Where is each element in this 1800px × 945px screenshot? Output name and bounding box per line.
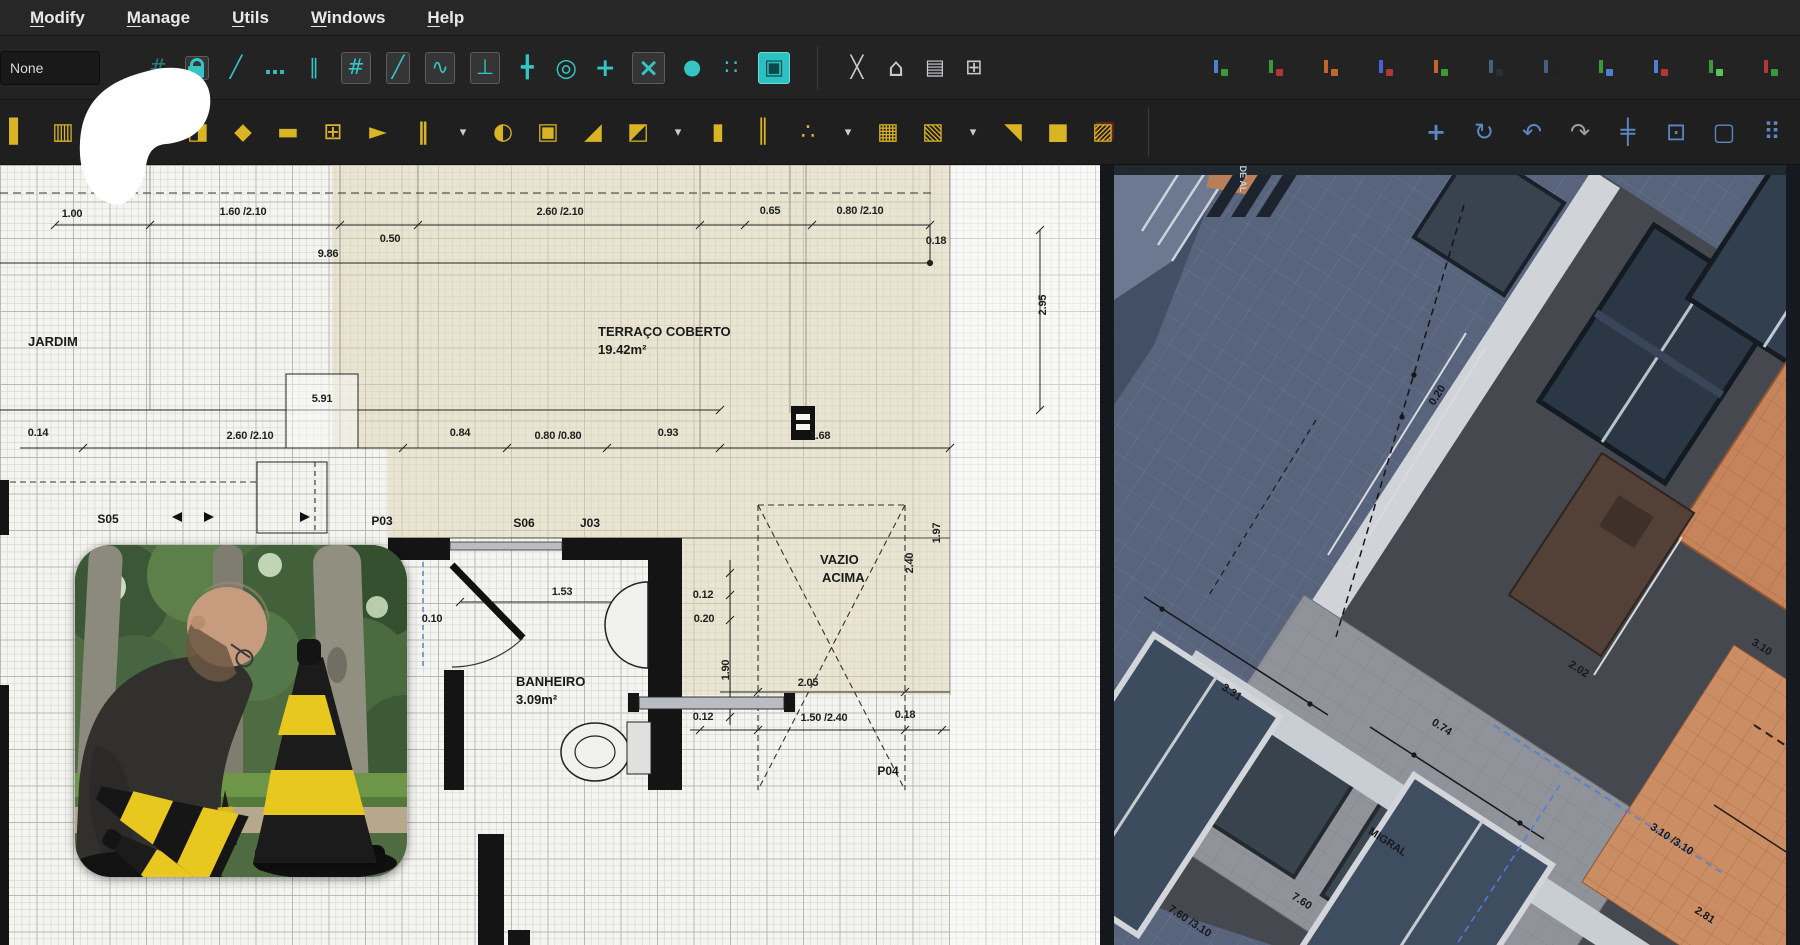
window-sill-s06 xyxy=(450,542,562,550)
solid-cube-icon[interactable]: ■ xyxy=(1046,117,1070,147)
stair-icon[interactable]: ◥ xyxy=(1001,117,1025,147)
text-annotation: J03 xyxy=(580,516,600,530)
text-annotation: 0.20 xyxy=(694,613,715,625)
wall-end-icon[interactable]: ▌ xyxy=(6,117,30,147)
text-annotation: 0.12 xyxy=(693,589,714,601)
add-icon[interactable]: + xyxy=(593,53,617,83)
pane-divider[interactable] xyxy=(1100,165,1114,945)
more-options-icon[interactable]: … xyxy=(263,53,287,83)
lock-icon[interactable] xyxy=(185,56,209,80)
room-label-terraco: TERRAÇO COBERTO xyxy=(598,324,731,339)
ramp-icon[interactable]: ◢ xyxy=(581,117,605,147)
webcam-video xyxy=(75,545,407,877)
toilet-tank xyxy=(627,722,651,774)
dim-aligned-icon[interactable] xyxy=(1266,59,1283,76)
text-annotation: 2.60 /2.10 xyxy=(227,430,274,442)
dim-edit-icon[interactable] xyxy=(1761,59,1778,76)
text-annotation: 5.91 xyxy=(312,393,333,405)
text-annotation: 0.80 /0.80 xyxy=(535,430,582,442)
text-annotation: 0.50 xyxy=(380,233,401,245)
room-area-terraco: 19.42m² xyxy=(598,342,647,357)
fit-view-icon[interactable]: ⊡ xyxy=(1664,117,1688,147)
text-annotation: DE AL xyxy=(1238,166,1248,193)
grid-snap-icon[interactable]: # xyxy=(146,53,170,83)
dim-flag-icon[interactable] xyxy=(1321,59,1338,76)
endpoint-snap-icon[interactable]: ╱ xyxy=(224,53,248,83)
menu-manage[interactable]: Manage xyxy=(127,8,190,28)
perpendicular-snap-icon[interactable]: ⊥ xyxy=(470,52,500,84)
text-annotation: 0.14 xyxy=(28,427,50,439)
text-annotation: P04 xyxy=(877,764,899,778)
orbit-icon[interactable]: ↻ xyxy=(1472,117,1496,147)
dropdown-2-icon[interactable]: ▾ xyxy=(671,117,685,147)
text-annotation: 2.60 /2.10 xyxy=(537,206,584,218)
label-marker-icon[interactable]: ► xyxy=(366,117,390,147)
column-icon[interactable]: ▯ xyxy=(141,117,165,147)
room-label-banheiro: BANHEIRO xyxy=(516,674,585,689)
door-panel-icon[interactable]: ▣ xyxy=(536,117,560,147)
dim-linear-icon[interactable] xyxy=(1211,59,1228,76)
text-annotation: 0.80 /2.10 xyxy=(837,205,884,217)
slab-angled-icon[interactable]: ▧ xyxy=(921,117,945,147)
room-label-jardim: JARDIM xyxy=(28,334,78,349)
menu-bar: ModifyManageUtilsWindowsHelp xyxy=(0,0,1800,36)
dim-chain-icon[interactable] xyxy=(1706,59,1723,76)
text-annotation: 1.90 xyxy=(720,660,732,681)
selection-filter-dropdown[interactable]: None xyxy=(0,51,100,85)
layers-icon[interactable]: ▤ xyxy=(923,53,947,83)
text-annotation: 0.10 xyxy=(422,613,443,625)
dim-vertical-icon[interactable] xyxy=(1596,59,1613,76)
text-annotation: 0.12 xyxy=(693,711,714,723)
points-icon[interactable]: ∴ xyxy=(796,117,820,147)
text-annotation: 0.18 xyxy=(926,235,947,247)
fill-tool-icon[interactable]: ◐ xyxy=(491,117,515,147)
toolbar-separator xyxy=(1148,108,1149,156)
tools-icon[interactable]: ╳ xyxy=(845,53,869,83)
room-label-acima: ACIMA xyxy=(822,570,865,585)
undo-view-icon[interactable]: ↶ xyxy=(1520,117,1544,147)
delete-icon[interactable]: × xyxy=(632,52,665,84)
view-tools-group: +↻↶↷╪⊡▢⠿ xyxy=(1424,117,1800,147)
text-annotation: 0.65 xyxy=(760,205,781,217)
morph-icon[interactable]: ▨ xyxy=(1091,117,1115,147)
text-annotation: 2.95 xyxy=(1037,295,1049,316)
text-annotation: 0.18 xyxy=(895,709,916,721)
build-tools-group: ▌▥▤▯◨◆▬⊞►‖▾◐▣◢◩▾▮║∴▾▦▧▾◥■▨ xyxy=(6,108,1161,156)
layout-page-icon[interactable]: ▢ xyxy=(1712,117,1736,147)
dropdown-3-icon[interactable]: ▾ xyxy=(841,117,855,147)
text-annotation: 2.40 xyxy=(904,553,916,574)
dimension-tools-group xyxy=(1211,59,1800,76)
presenter-webcam-overlay[interactable] xyxy=(75,545,407,877)
text-annotation: P03 xyxy=(371,514,393,528)
selection-filter-value: None xyxy=(10,60,43,76)
door-icon[interactable]: ◨ xyxy=(186,117,210,147)
object-icon[interactable]: ◩ xyxy=(626,117,650,147)
rotate-ccw-icon[interactable] xyxy=(1486,59,1503,76)
model-3d-scene: 0.203.310.742.02MIGRAL3.10 /3.102.817.60… xyxy=(1114,165,1800,945)
room-area-banheiro: 3.09m² xyxy=(516,692,558,707)
window-icon[interactable]: ⊞ xyxy=(321,117,345,147)
toolbar-separator xyxy=(817,46,818,90)
railing-icon[interactable]: ‖ xyxy=(411,117,435,147)
cad-application-window: ModifyManageUtilsWindowsHelp None #╱…∥#╱… xyxy=(0,0,1800,945)
menu-utils[interactable]: Utils xyxy=(232,8,269,28)
text-annotation: 1.68 xyxy=(810,430,831,442)
dropdown-1-icon[interactable]: ▾ xyxy=(456,117,470,147)
text-annotation: 1.50 /2.40 xyxy=(801,712,848,724)
grid-display-icon[interactable]: # xyxy=(341,52,371,84)
split-view-icon[interactable]: ╪ xyxy=(1616,117,1640,147)
wall-icon[interactable]: ▥ xyxy=(51,117,75,147)
text-annotation: S06 xyxy=(513,516,535,530)
menu-modify[interactable]: Modify xyxy=(30,8,85,28)
text-annotation: S05 xyxy=(97,512,119,526)
text-annotation: 0.93 xyxy=(658,427,679,439)
slab-icon[interactable]: ▬ xyxy=(276,117,300,147)
dim-baseline-icon[interactable] xyxy=(1651,59,1668,76)
main-toolbar: None #╱…∥#╱∿⊥╋◎+×●∷▣╳⌂▤⊞ xyxy=(0,36,1800,100)
text-annotation: 0.84 xyxy=(450,427,472,439)
dim-ordinate-icon[interactable] xyxy=(1431,59,1448,76)
text-annotation: 1.97 xyxy=(931,523,943,544)
window-sill-lower xyxy=(639,697,784,709)
text-annotation: 9.86 xyxy=(318,248,339,260)
model-3d-viewport[interactable]: 0.203.310.742.02MIGRAL3.10 /3.102.817.60… xyxy=(1114,165,1800,945)
roof-icon[interactable]: ◆ xyxy=(231,117,255,147)
room-label-vazio: VAZIO xyxy=(820,552,859,567)
point-array-icon[interactable]: ∷ xyxy=(719,53,743,83)
menu-help[interactable]: Help xyxy=(427,8,464,28)
center-snap-icon[interactable]: ◎ xyxy=(554,53,578,83)
rotate-cw-icon[interactable] xyxy=(1541,59,1558,76)
text-annotation: 1.53 xyxy=(552,586,573,598)
mesh-icon[interactable]: ▦ xyxy=(876,117,900,147)
move-tool-icon[interactable]: ╋ xyxy=(515,53,539,83)
line-tool-icon[interactable]: ╱ xyxy=(386,52,411,84)
home-view-icon[interactable]: ⌂ xyxy=(884,53,908,83)
grid-views-icon[interactable]: ⠿ xyxy=(1760,117,1784,147)
active-panel-icon[interactable]: ▣ xyxy=(758,52,790,84)
text-annotation: 2.05 xyxy=(798,677,819,689)
text-annotation: 1.60 /2.10 xyxy=(220,206,267,218)
toilet-bowl xyxy=(561,723,629,781)
dim-text-icon[interactable] xyxy=(1376,59,1393,76)
model-grid-icon[interactable]: ⊞ xyxy=(962,53,986,83)
text-annotation: 1.00 xyxy=(62,208,83,220)
menu-windows[interactable]: Windows xyxy=(311,8,385,28)
redo-view-icon[interactable]: ↷ xyxy=(1568,117,1592,147)
dropdown-4-icon[interactable]: ▾ xyxy=(966,117,980,147)
eraser-icon[interactable]: ● xyxy=(680,53,704,83)
curtain-wall-icon[interactable]: ║ xyxy=(751,117,775,147)
pan-icon[interactable]: + xyxy=(1424,117,1448,147)
beam-icon[interactable]: ▤ xyxy=(96,117,120,147)
window-tag-box xyxy=(286,374,358,448)
spline-tool-icon[interactable]: ∿ xyxy=(425,52,455,84)
snap-tools-group: #╱…∥#╱∿⊥╋◎+×●∷▣╳⌂▤⊞ xyxy=(146,46,986,90)
column-tool-icon[interactable]: ▮ xyxy=(706,117,730,147)
parallel-snap-icon[interactable]: ∥ xyxy=(302,53,326,83)
design-toolbar: ▌▥▤▯◨◆▬⊞►‖▾◐▣◢◩▾▮║∴▾▦▧▾◥■▨ +↻↶↷╪⊡▢⠿ xyxy=(0,100,1800,165)
